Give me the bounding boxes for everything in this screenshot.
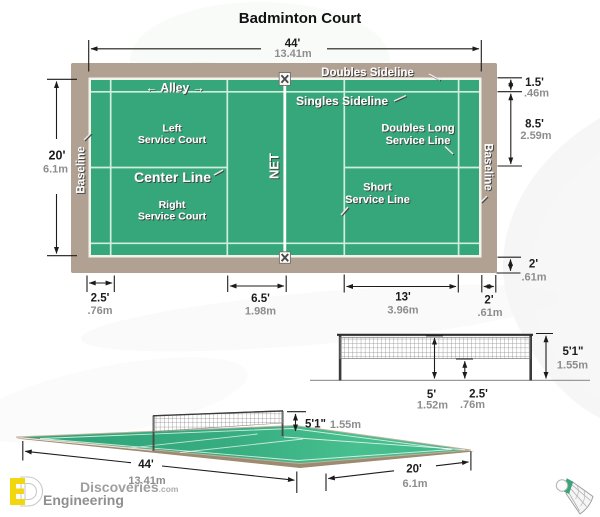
svg-text:1.98m: 1.98m <box>245 306 276 318</box>
svg-text:Center Line: Center Line <box>134 169 211 185</box>
svg-text:NET: NET <box>267 153 282 179</box>
svg-text:13': 13' <box>395 292 411 304</box>
svg-text:Service Line: Service Line <box>345 194 410 206</box>
svg-text:← Alley →: ← Alley → <box>146 80 205 94</box>
svg-text:6.1m: 6.1m <box>43 164 68 176</box>
svg-text:Doubles Sideline: Doubles Sideline <box>321 67 414 79</box>
svg-text:.61m: .61m <box>521 271 546 283</box>
svg-text:1.52m: 1.52m <box>417 399 448 411</box>
svg-text:20': 20' <box>49 149 66 163</box>
svg-text:1.55m: 1.55m <box>557 359 588 371</box>
svg-text:Baseline: Baseline <box>482 143 494 190</box>
svg-text:2': 2' <box>529 259 538 271</box>
svg-text:3.96m: 3.96m <box>387 305 418 317</box>
svg-text:.61m: .61m <box>477 307 502 319</box>
svg-text:5'1": 5'1" <box>305 418 326 430</box>
svg-text:2.5': 2.5' <box>91 292 110 304</box>
svg-text:.46m: .46m <box>524 88 549 100</box>
svg-text:.76m: .76m <box>87 305 112 317</box>
svg-text:13.41m: 13.41m <box>274 48 312 60</box>
svg-text:2': 2' <box>484 294 493 306</box>
svg-text:Engineering: Engineering <box>43 492 124 508</box>
svg-text:.76m: .76m <box>460 399 485 411</box>
svg-text:44': 44' <box>138 459 154 471</box>
svg-text:Service Line: Service Line <box>386 135 451 147</box>
svg-text:Left: Left <box>162 122 182 134</box>
svg-text:6.1m: 6.1m <box>402 478 427 490</box>
svg-text:Short: Short <box>363 181 392 193</box>
svg-text:5'1": 5'1" <box>563 346 584 358</box>
svg-text:1.55m: 1.55m <box>330 419 361 431</box>
svg-text:Baseline: Baseline <box>76 146 88 193</box>
svg-text:Doubles Long: Doubles Long <box>381 122 454 134</box>
svg-text:Service Court: Service Court <box>138 210 207 222</box>
svg-text:2.59m: 2.59m <box>520 130 551 142</box>
svg-text:Service Court: Service Court <box>138 134 207 146</box>
svg-text:Singles Sideline: Singles Sideline <box>296 94 388 108</box>
svg-text:8.5': 8.5' <box>525 118 544 130</box>
svg-text:Badminton Court: Badminton Court <box>239 10 361 27</box>
svg-text:Right: Right <box>159 199 186 211</box>
svg-text:20': 20' <box>406 463 422 475</box>
svg-text:6.5': 6.5' <box>251 293 270 305</box>
